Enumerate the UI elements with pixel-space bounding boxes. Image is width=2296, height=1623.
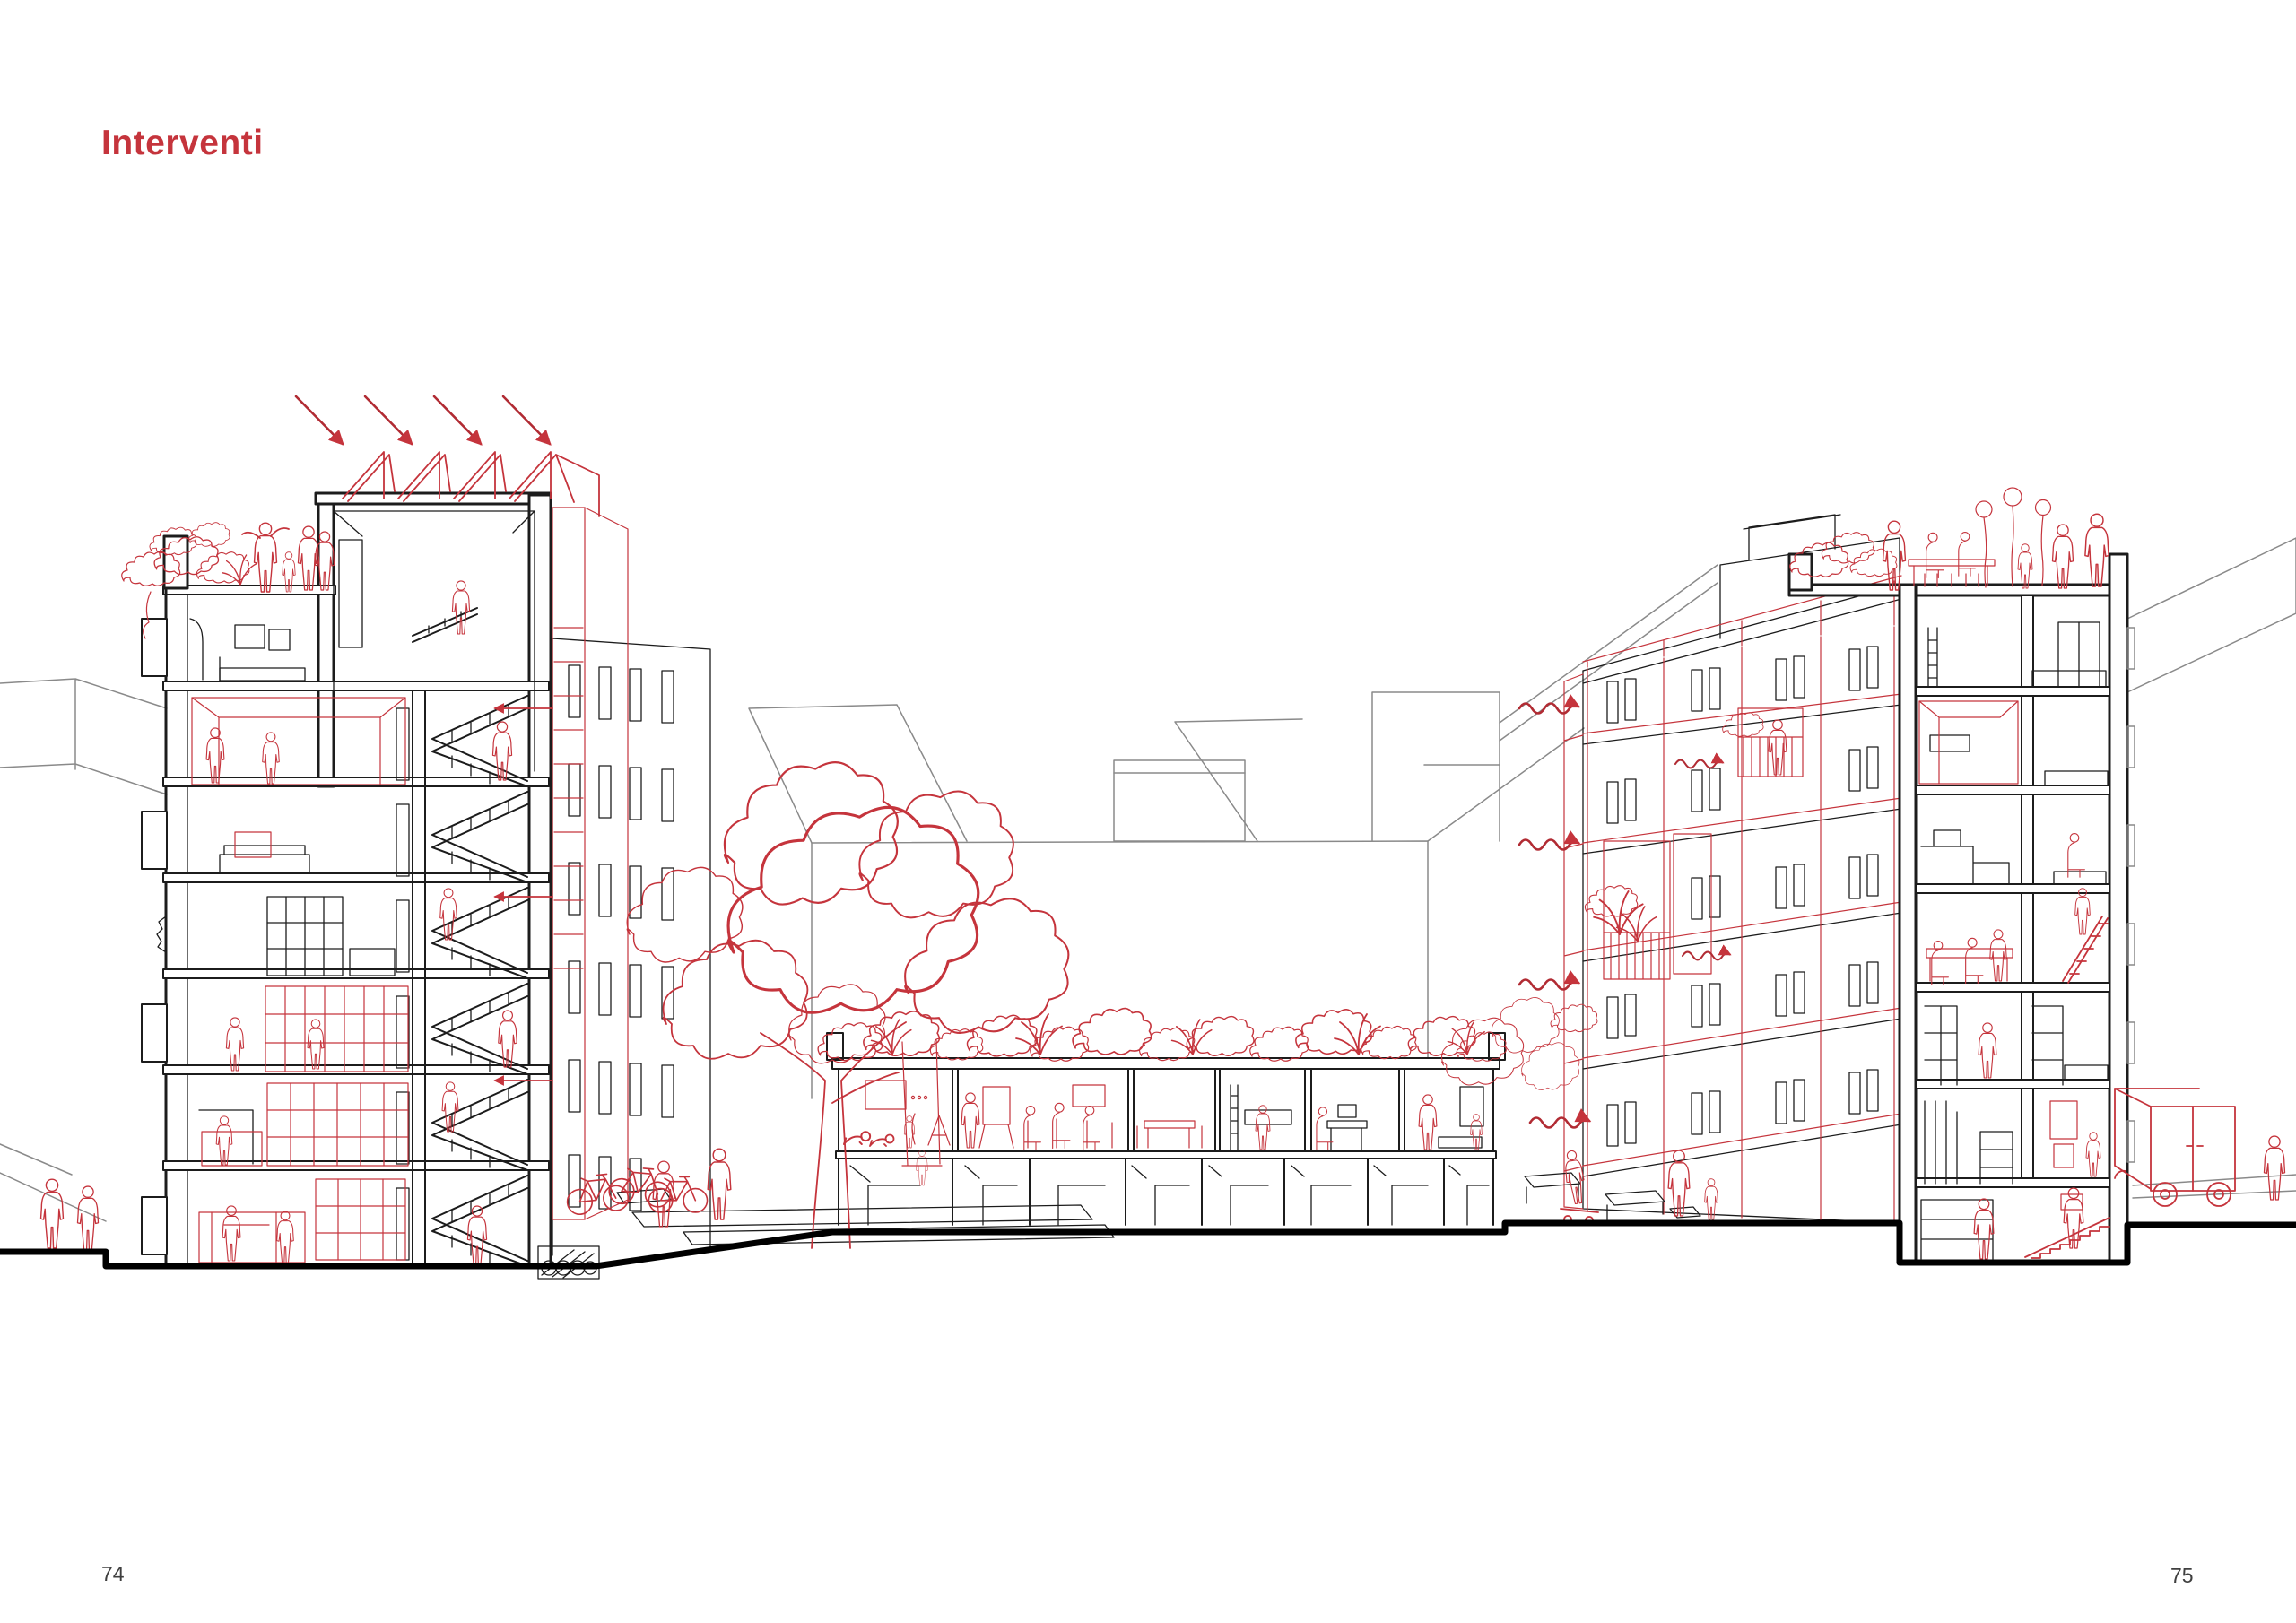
sun-arrows xyxy=(296,396,550,444)
workshop-floor xyxy=(265,986,408,1072)
green-roof-pavilion xyxy=(818,1009,1506,1062)
page-number-left: 74 xyxy=(101,1562,125,1586)
section-drawing xyxy=(0,0,2296,1623)
pavilion-section xyxy=(827,1033,1505,1225)
bedroom-floor xyxy=(190,619,305,681)
renovated-unit xyxy=(192,698,405,785)
courtyard-people-left xyxy=(653,1149,731,1227)
entry-stairs xyxy=(2025,1218,2109,1258)
ventilation-shaft xyxy=(495,508,628,1219)
balcony-with-plants xyxy=(1604,834,1711,979)
living-floor xyxy=(220,846,309,872)
courtyard-shrubs-right xyxy=(1442,997,1597,1089)
street-people-left xyxy=(41,1179,99,1250)
solar-panels xyxy=(343,452,599,516)
pavilion-communal-rooms xyxy=(844,1081,1483,1150)
courtyard-people-right xyxy=(1525,1150,1718,1224)
balconies xyxy=(1585,708,1803,979)
delivery-van xyxy=(2115,1089,2235,1206)
bicycles xyxy=(565,1166,708,1216)
community-kitchen xyxy=(199,1179,405,1263)
skateboarder xyxy=(1561,1150,1598,1224)
atelier-floor xyxy=(202,1083,408,1166)
roof-terrace-right xyxy=(1790,488,2109,590)
pedestrian-right xyxy=(2264,1136,2284,1200)
study-floor xyxy=(267,897,395,976)
pavement xyxy=(617,1189,1114,1245)
neighbour-facade xyxy=(552,638,710,1255)
right-building-section xyxy=(1789,554,2135,1263)
courtyard-tree xyxy=(627,762,1068,1248)
right-building-red-interiors xyxy=(1919,701,2108,1176)
book-page: Interventi xyxy=(0,0,2296,1623)
page-number-right: 75 xyxy=(2170,1564,2194,1588)
terrace-table xyxy=(1909,560,1995,586)
